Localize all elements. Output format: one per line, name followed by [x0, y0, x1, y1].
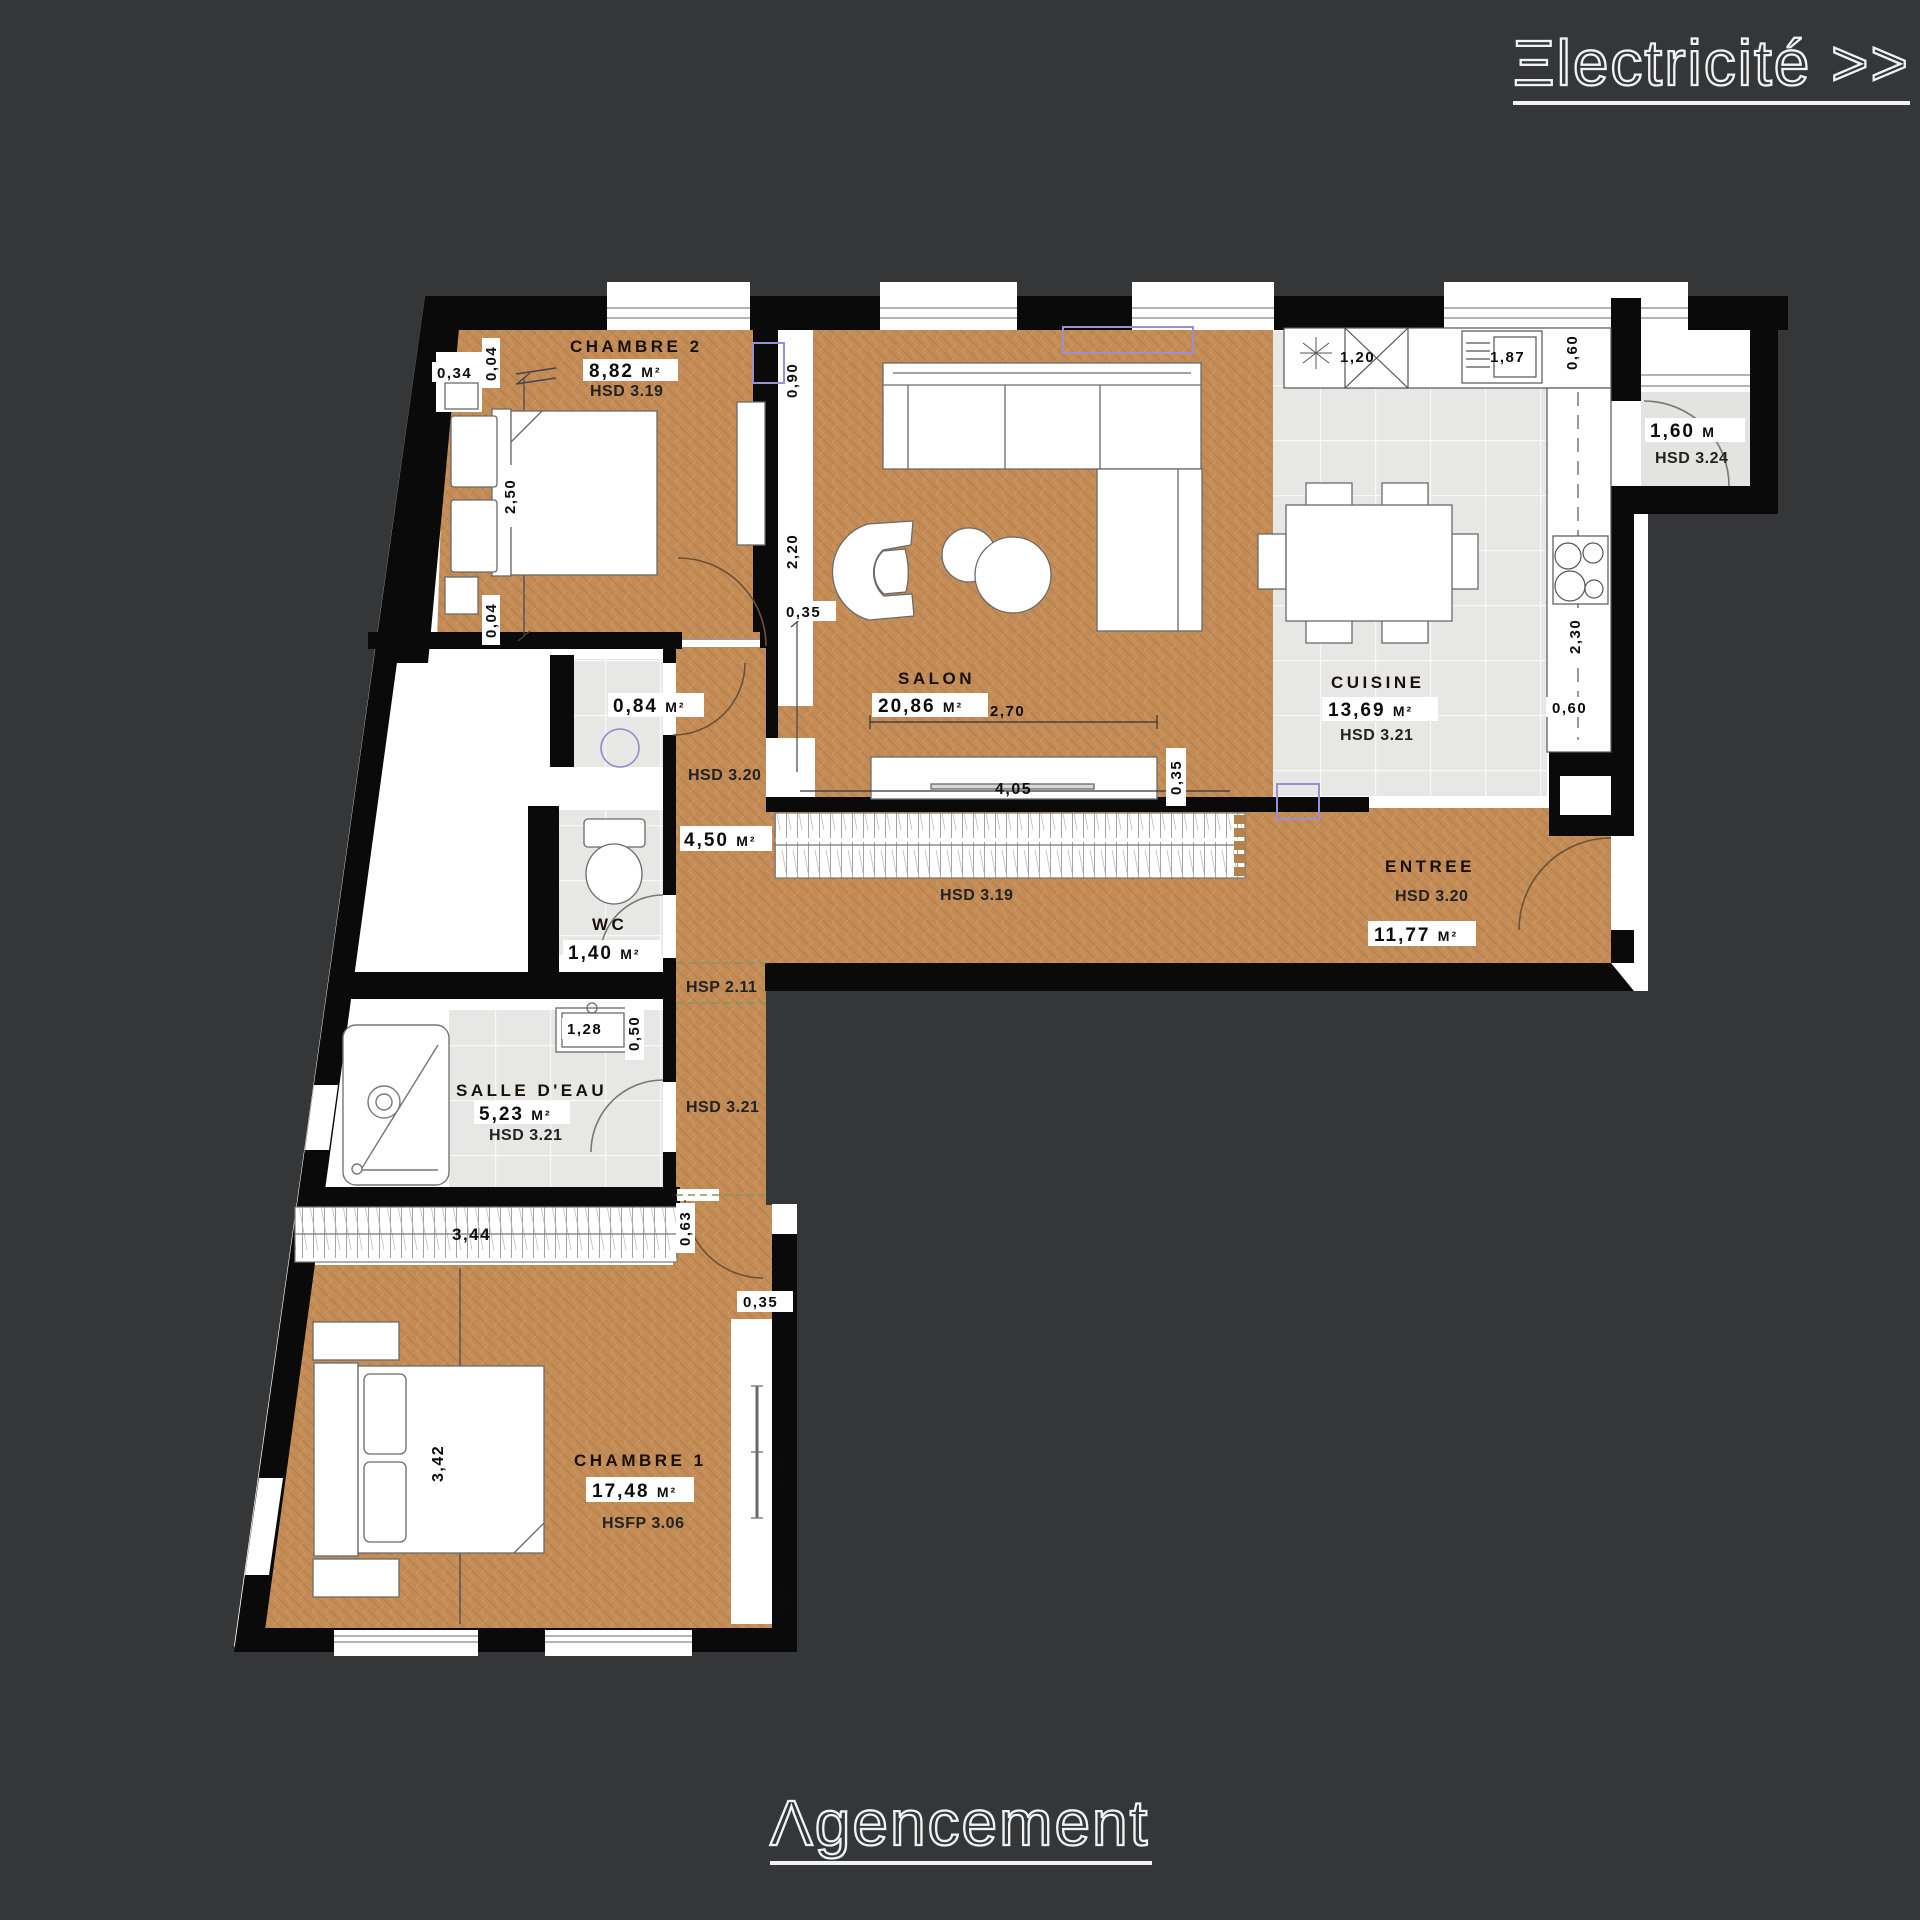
svg-text:ENTREE: ENTREE — [1385, 857, 1475, 876]
svg-text:5,23 M²: 5,23 M² — [479, 1104, 552, 1125]
svg-text:1,40 M²: 1,40 M² — [568, 943, 641, 964]
svg-text:13,69 M²: 13,69 M² — [1328, 700, 1413, 721]
svg-text:0,40: 0,40 — [773, 1455, 788, 1486]
svg-text:1,28: 1,28 — [567, 1021, 602, 1038]
svg-text:HSD 3.20: HSD 3.20 — [1395, 888, 1468, 905]
svg-text:HSD 3.20: HSD 3.20 — [688, 767, 761, 784]
svg-text:0,63: 0,63 — [677, 1211, 694, 1246]
svg-text:SALLE D'EAU: SALLE D'EAU — [456, 1081, 607, 1100]
svg-text:17,48 M²: 17,48 M² — [592, 1481, 677, 1502]
svg-text:2,20: 2,20 — [784, 534, 801, 569]
svg-text:HSD 3.21: HSD 3.21 — [686, 1099, 759, 1116]
svg-text:Ξlectricité >>: Ξlectricité >> — [1513, 27, 1910, 99]
svg-text:8,82 M²: 8,82 M² — [589, 361, 662, 382]
svg-text:0,84 M²: 0,84 M² — [613, 696, 686, 717]
svg-text:0,90: 0,90 — [784, 363, 801, 398]
svg-text:3,42: 3,42 — [430, 1445, 447, 1482]
svg-text:1,60 M: 1,60 M — [1650, 421, 1716, 442]
svg-text:CUISINE: CUISINE — [1331, 673, 1424, 692]
svg-text:0,60: 0,60 — [1564, 335, 1581, 370]
svg-text:0,34: 0,34 — [437, 365, 472, 382]
svg-text:SALON: SALON — [898, 669, 975, 688]
svg-text:CHAMBRE 1: CHAMBRE 1 — [574, 1451, 707, 1470]
svg-text:CHAMBRE 2: CHAMBRE 2 — [570, 337, 703, 356]
svg-text:HSP 2.11: HSP 2.11 — [686, 979, 757, 996]
svg-text:0,35: 0,35 — [786, 604, 821, 621]
svg-text:11,77 M²: 11,77 M² — [1374, 925, 1458, 946]
svg-text:0,04: 0,04 — [483, 346, 500, 381]
svg-text:4,05: 4,05 — [995, 781, 1032, 798]
svg-text:HSD 3.24: HSD 3.24 — [1655, 450, 1728, 467]
svg-text:2,70: 2,70 — [990, 703, 1025, 720]
svg-text:1,20: 1,20 — [1340, 349, 1375, 366]
svg-text:WC: WC — [592, 915, 627, 934]
svg-text:20,86 M²: 20,86 M² — [878, 696, 963, 717]
svg-text:0,50: 0,50 — [775, 1587, 790, 1618]
svg-text:HSD 3.19: HSD 3.19 — [590, 383, 663, 400]
svg-text:HSFP 3.06: HSFP 3.06 — [602, 1515, 684, 1532]
svg-text:1,87: 1,87 — [1490, 349, 1525, 366]
svg-text:2,50: 2,50 — [502, 479, 519, 514]
svg-text:HSD 3.21: HSD 3.21 — [489, 1127, 562, 1144]
svg-text:0,35: 0,35 — [1168, 760, 1185, 795]
svg-text:0,50: 0,50 — [626, 1016, 643, 1051]
svg-text:2,30: 2,30 — [1567, 619, 1584, 654]
svg-text:3,44: 3,44 — [452, 1225, 491, 1244]
svg-text:HSD 3.19: HSD 3.19 — [940, 887, 1013, 904]
svg-text:Λgencement: Λgencement — [770, 1787, 1149, 1859]
svg-text:4,50 M²: 4,50 M² — [684, 830, 757, 851]
svg-text:0,60: 0,60 — [1552, 700, 1587, 717]
svg-text:0,04: 0,04 — [483, 603, 500, 638]
svg-text:HSD 3.21: HSD 3.21 — [1340, 727, 1413, 744]
svg-text:0,35: 0,35 — [743, 1294, 778, 1311]
